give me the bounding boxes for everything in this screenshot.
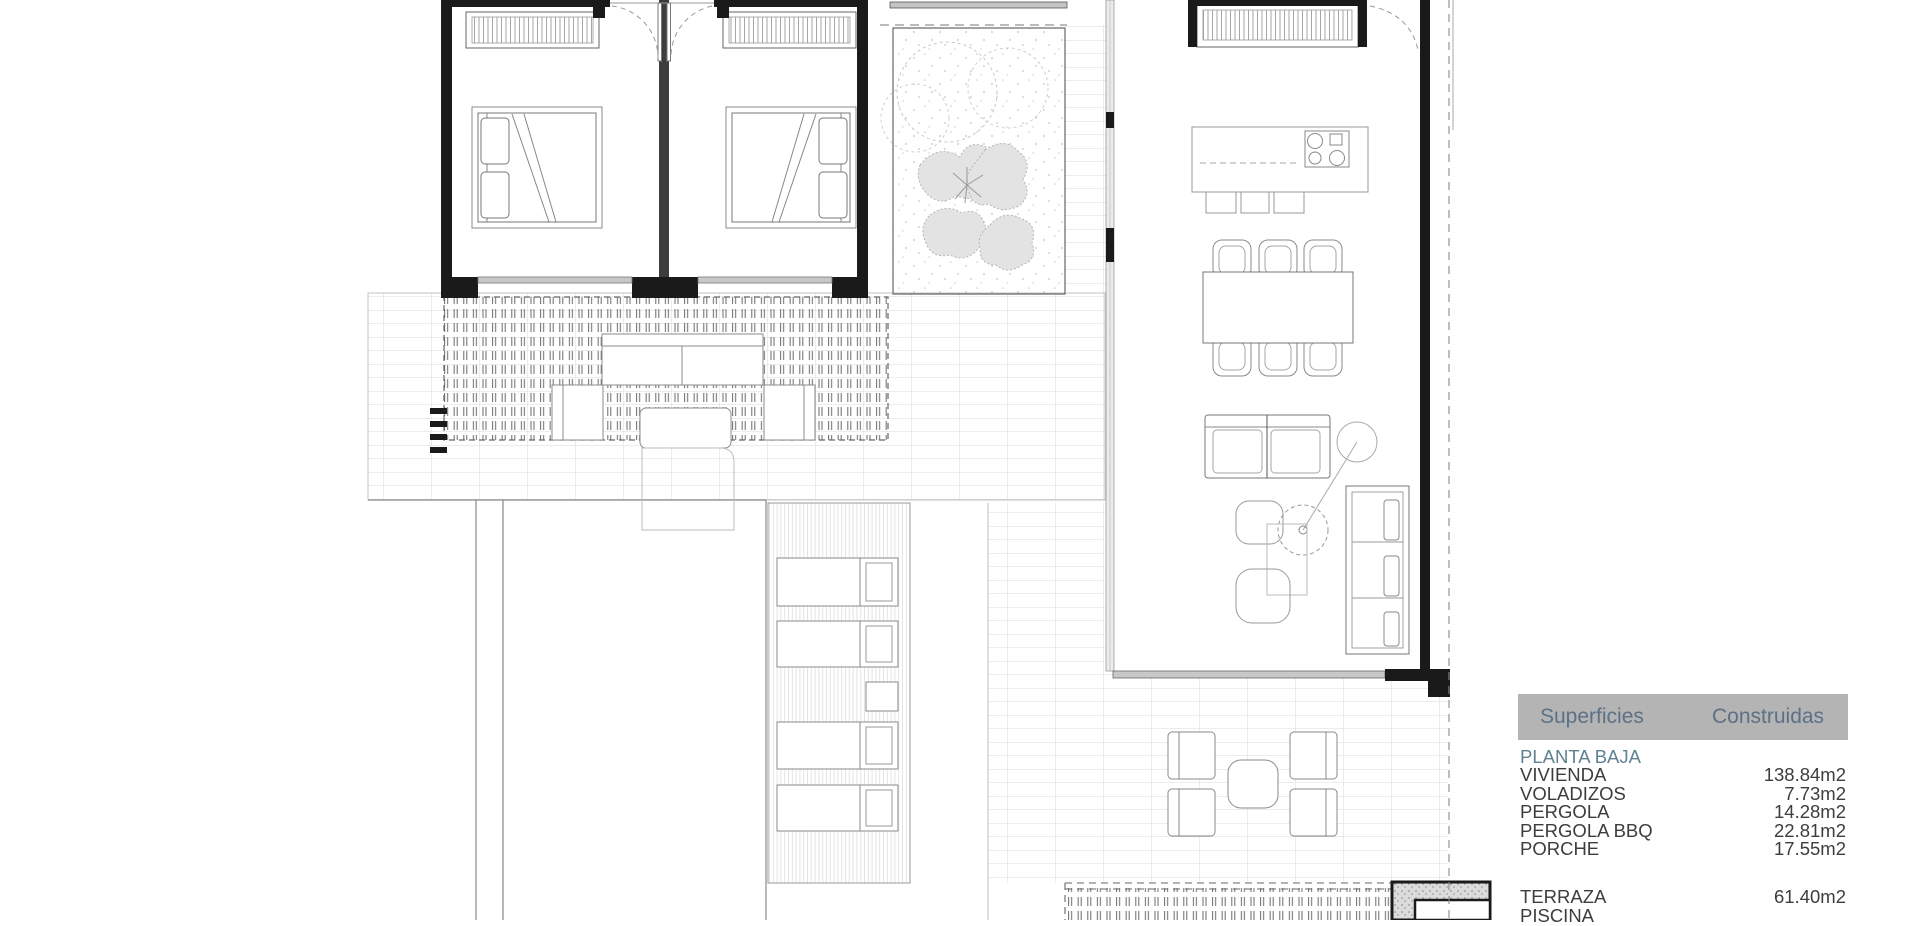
outdoor-coffee-table [640,408,731,448]
areas-table-header: Superficies Construidas [1518,694,1848,740]
area-row-piscina: PISCINA [1518,907,1848,925]
daybed [1346,486,1409,654]
area-label: PISCINA [1520,907,1846,925]
living-east-wall [1420,0,1430,673]
dining-table [1203,272,1353,343]
living-west-window-wall [1106,0,1114,671]
area-label: PORCHE [1520,840,1774,858]
area-label: PERGOLA [1520,803,1774,821]
areas-table-col-construidas: Construidas [1712,705,1848,729]
bedroom-1-bed [472,107,602,228]
pillow [819,172,847,218]
dining-set [1203,240,1353,376]
area-value: 17.55m2 [1774,840,1848,858]
area-value [1846,907,1848,925]
outdoor-table [1228,760,1278,808]
sofa [1205,415,1330,478]
areas-table-col-superficies: Superficies [1518,705,1712,729]
bbq-pergola [1065,882,1490,920]
bedroom-block [441,0,868,298]
area-row-porche: PORCHE 17.55m2 [1518,840,1848,858]
bbq-counter [1392,882,1490,920]
door-leaf [667,3,671,61]
roof-edge-bar [890,2,1067,8]
bar-stools [1206,192,1304,213]
bedroom-2-bed [726,107,856,228]
entry-closet [1188,0,1367,47]
pillow [481,118,509,164]
tree-patio [880,2,1067,294]
outdoor-armchair [552,385,603,440]
areas-table-body: PLANTA BAJA VIVIENDA 138.84m2 VOLADIZOS … [1518,740,1848,925]
pool [368,500,766,920]
porch-deck-strip [1065,25,1106,293]
areas-table: Superficies Construidas PLANTA BAJA VIVI… [1518,694,1848,925]
area-value: 14.28m2 [1774,803,1848,821]
living-wing [1106,0,1450,697]
area-row-pergola: PERGOLA 14.28m2 [1518,803,1848,821]
outdoor-armchair [764,385,815,440]
pillow [819,118,847,164]
legend-spacer [1518,858,1848,888]
side-table [866,682,898,711]
pillow [481,172,509,218]
sun-deck [768,503,910,883]
door-leaf [658,3,662,61]
area-value: 61.40m2 [1774,888,1848,906]
sliding-glass-door [1113,671,1385,678]
